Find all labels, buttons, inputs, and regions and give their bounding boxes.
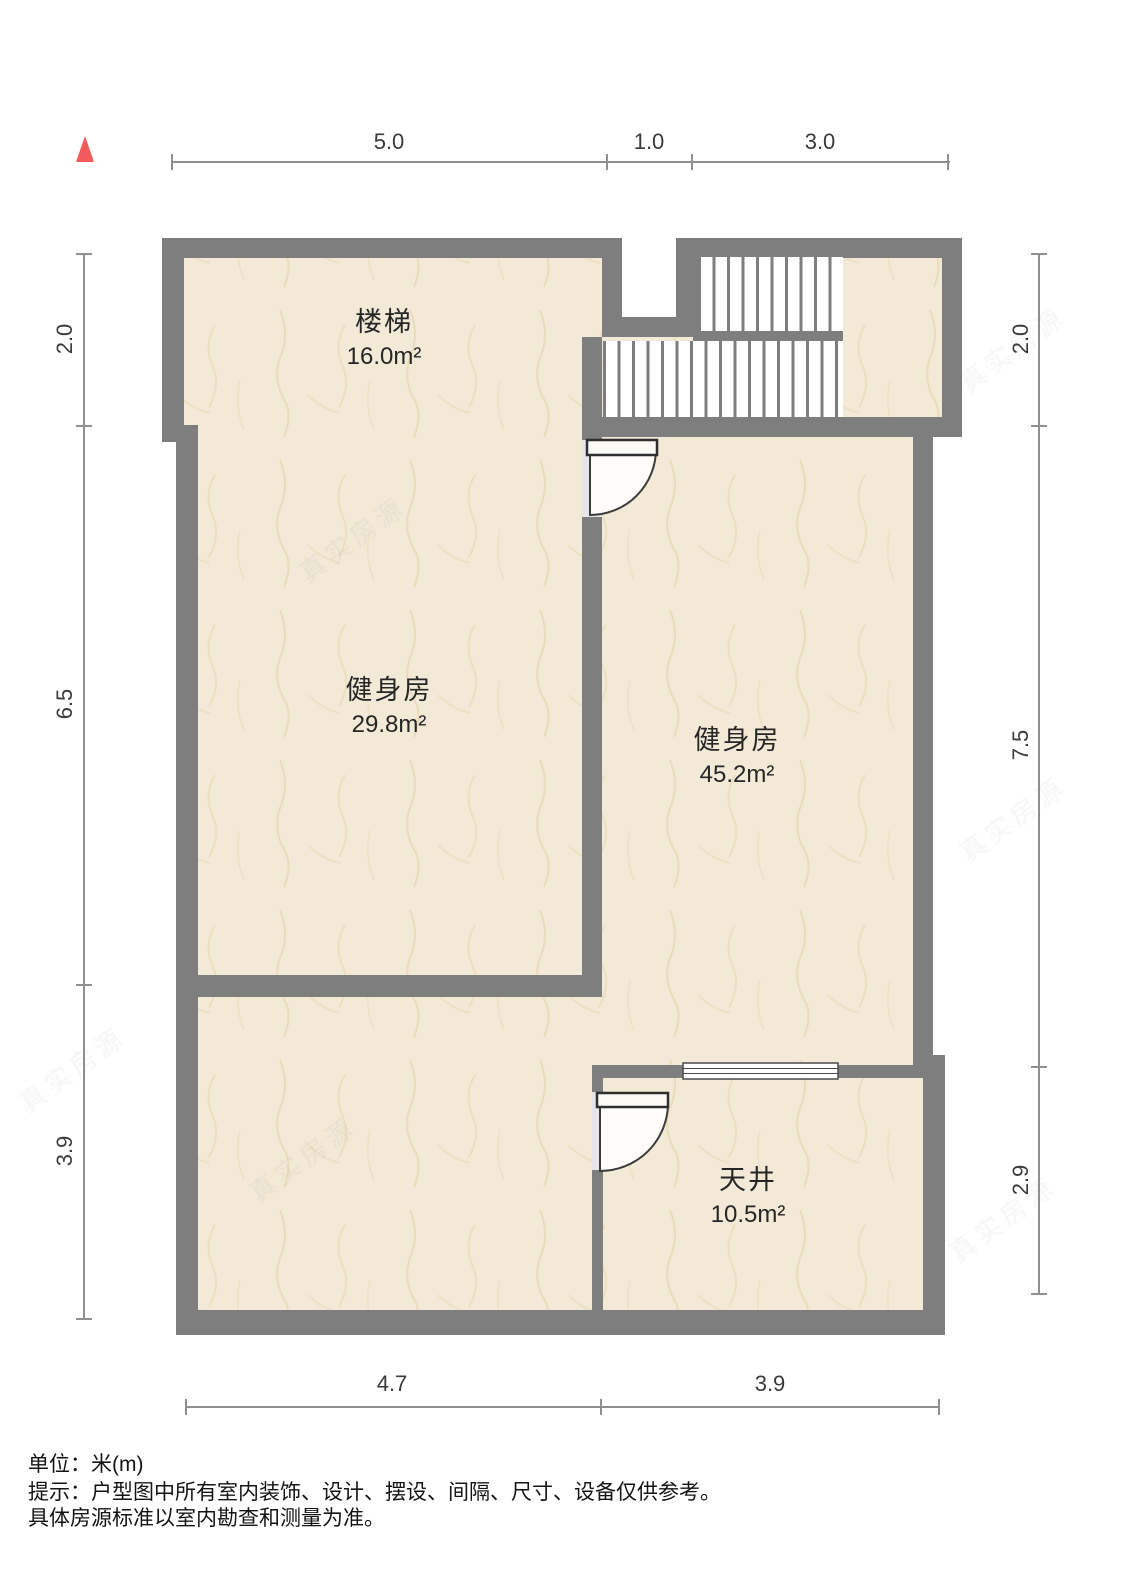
dim-line-left — [83, 253, 85, 1320]
watermark: 真实房源 — [941, 1167, 1063, 1270]
dim-tick — [600, 1399, 602, 1415]
room-label-stairs: 楼梯 16.0m² — [347, 300, 422, 371]
room-area: 29.8m² — [346, 711, 433, 739]
dim-tick — [606, 154, 608, 170]
dim-value-left-3: 3.9 — [52, 1136, 78, 1167]
room-name: 天井 — [711, 1158, 786, 1197]
wall-courtyard-top — [592, 1065, 933, 1078]
dim-value-right-2: 7.5 — [1008, 730, 1034, 761]
dim-tick — [691, 154, 693, 170]
dim-line-bottom — [186, 1406, 940, 1408]
room-label-gym-right: 健身房 45.2m² — [694, 718, 781, 789]
floor-lower-left-room — [198, 997, 602, 1310]
stairs-mid-rail — [693, 331, 843, 341]
wall-divider-upper — [582, 337, 602, 440]
dim-tick — [1031, 425, 1047, 427]
entry-notch — [622, 238, 676, 317]
dim-tick — [76, 253, 92, 255]
wall-divider-lower — [582, 517, 602, 997]
dim-tick — [76, 984, 92, 986]
wall-right-gym — [913, 437, 933, 1055]
dim-value-left-2: 6.5 — [52, 689, 78, 720]
dim-value-right-3: 2.9 — [1008, 1165, 1034, 1196]
room-label-gym-left: 健身房 29.8m² — [346, 668, 433, 739]
dim-tick — [76, 425, 92, 427]
north-arrow-icon — [76, 136, 94, 162]
dim-value-bottom-2: 3.9 — [755, 1371, 786, 1397]
wall-right-stairs-section — [942, 238, 962, 437]
doorway-gap-courtyard — [592, 1092, 603, 1170]
note-disclaimer-line2: 具体房源标准以室内勘查和测量为准。 — [28, 1502, 385, 1532]
watermark: 真实房源 — [11, 1017, 133, 1120]
dim-value-right-1: 2.0 — [1008, 324, 1034, 355]
dim-tick — [76, 1318, 92, 1320]
wall-left-upper — [162, 258, 184, 432]
wall-under-gym-left — [176, 975, 602, 997]
dim-value-top-2: 1.0 — [634, 129, 665, 155]
room-label-courtyard: 天井 10.5m² — [711, 1158, 786, 1229]
wall-notch-left-jamb — [602, 258, 622, 317]
wall-notch-right-jamb — [676, 258, 698, 317]
wall-top-left-segment — [162, 238, 622, 258]
wall-left-lower — [176, 442, 198, 1335]
room-area: 10.5m² — [711, 1201, 786, 1229]
stairs-upper-flight — [698, 257, 843, 331]
room-name: 健身房 — [346, 668, 433, 707]
dim-tick — [938, 1399, 940, 1415]
dim-tick — [947, 154, 949, 170]
wall-top-right-segment — [676, 238, 962, 258]
room-area: 45.2m² — [694, 761, 781, 789]
wall-right-courtyard — [923, 1078, 945, 1310]
dim-tick — [1031, 253, 1047, 255]
room-name: 楼梯 — [347, 300, 422, 339]
wall-courtyard-left-lower — [592, 1170, 603, 1310]
dim-tick — [1031, 1066, 1047, 1068]
dim-line-top — [172, 161, 950, 163]
dim-value-left-1: 2.0 — [52, 324, 78, 355]
dim-value-bottom-1: 4.7 — [377, 1371, 408, 1397]
dim-value-top-1: 5.0 — [374, 129, 405, 155]
stairs-lower-flight — [603, 341, 843, 417]
watermark: 真实房源 — [951, 767, 1073, 870]
note-unit: 单位：米(m) — [28, 1448, 143, 1478]
doorway-gap-gym — [582, 440, 602, 517]
wall-courtyard-left-upper — [592, 1078, 603, 1092]
wall-notch-bottom — [602, 317, 698, 337]
dim-line-right — [1038, 253, 1040, 1295]
floorplan-canvas: 真实房源 真实房源 真实房源 真实房源 真实房源 真实房源 — [0, 0, 1125, 1572]
dim-value-top-3: 3.0 — [805, 129, 836, 155]
wall-below-stairs — [582, 417, 962, 437]
room-name: 健身房 — [694, 718, 781, 757]
wall-bottom — [176, 1310, 945, 1335]
dim-tick — [171, 154, 173, 170]
dim-tick — [185, 1399, 187, 1415]
room-area: 16.0m² — [347, 343, 422, 371]
wall-left-step — [162, 425, 198, 442]
dim-tick — [1031, 1293, 1047, 1295]
